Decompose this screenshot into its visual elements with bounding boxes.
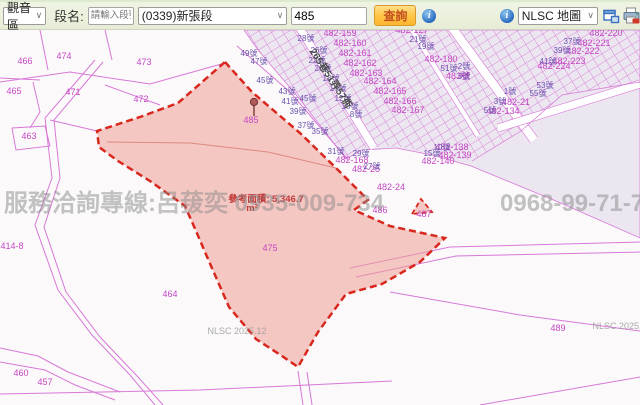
house-number-label: 31號 [328,146,345,156]
house-number-label: 8號 [350,109,362,119]
land-parcel-map-app: 觀音區 ∨ 段名: (0339)新張段 ∨ 查詢 i i NLSC 地圖 ∨ [0,0,640,405]
query-button[interactable]: 查詢 [374,5,416,26]
service-watermark: 服務洽詢專線:呂菝奕 0935-009-734 [4,189,385,217]
section-number-input[interactable] [88,7,134,25]
chevron-down-icon: ∨ [277,10,284,21]
house-number-label: 35號 [312,126,329,136]
parcel-number-label: 482-161 [338,48,371,58]
parcel-number-label: 457 [37,377,52,387]
parcel-number-label: 482-222 [566,46,599,56]
map-credit-label: NLSC 2025.12 [207,326,266,336]
parcel-number-label: 460 [13,368,28,378]
section-select-value: (0339)新張段 [142,7,213,24]
parcel-number-label: 473 [136,57,151,67]
parcel-number-label: 482-180 [424,54,457,64]
section-select[interactable]: (0339)新張段 ∨ [138,7,288,25]
district-select-value: 觀音區 [7,0,33,33]
parcel-number-label: 489 [550,323,565,333]
house-number-label: 39號 [290,106,307,116]
district-select[interactable]: 觀音區 ∨ [3,7,46,25]
parcel-number-label: 414-8 [0,241,23,251]
info-icon[interactable]: i [422,9,436,23]
house-number-label: 19號 [418,41,435,51]
parcel-number-label: 471 [65,87,80,97]
house-number-label: 3號 [458,71,470,81]
house-number-label: 10號 [434,142,451,152]
parcel-number-label: 482-162 [343,58,376,68]
service-watermark: 0968-99-71-75 [500,190,640,217]
parcel-number-label: 463 [21,131,36,141]
house-number-label: 5號 [484,105,496,115]
parcel-number-label: 475 [262,243,277,253]
chevron-down-icon: ∨ [587,10,594,21]
house-number-label: 2號 [458,61,470,71]
parcel-number-input[interactable] [291,7,367,25]
house-number-label: 1號 [504,86,516,96]
basemap-info-icon[interactable]: i [500,9,514,23]
chevron-down-icon: ∨ [36,10,43,21]
parcel-number-label: 482-220 [589,30,622,38]
house-number-label: 27號 [364,161,381,171]
parcel-number-label: 464 [162,289,177,299]
house-number-label: 45號 [257,75,274,85]
parcel-number-label: 482-160 [333,38,366,48]
house-number-label: 55號 [530,88,547,98]
house-number-label: 45號 [300,93,317,103]
new-window-icon[interactable] [603,8,620,24]
parcel-number-label: 482-165 [373,86,406,96]
print-pdf-icon[interactable] [623,7,640,24]
parcel-number-label: 485 [243,115,258,125]
parcel-number-label: 482-159 [323,30,356,38]
house-number-label: 29號 [353,148,370,158]
parcel-number-label: 465 [6,86,21,96]
house-number-label: 3號 [494,96,506,106]
house-number-label: 47號 [251,56,268,66]
parcel-number-label: 482-164 [363,76,396,86]
parcel-number-label: 482-167 [391,105,424,115]
parcel-number-label: 487 [416,209,431,219]
cadastral-map[interactable]: 466474473465471472463414-846446045748947… [0,30,640,405]
house-number-label: 51號 [441,63,458,73]
house-number-label: 39號 [554,45,571,55]
basemap-select[interactable]: NLSC 地圖 ∨ [518,7,598,25]
house-number-label: 43號 [279,86,296,96]
parcel-number-label: 472 [133,94,148,104]
parcel-number-label: 474 [56,51,71,61]
map-credit-label: NLSC 2025.12 [592,321,640,331]
parcel-number-label: 466 [17,56,32,66]
section-name-label: 段名: [54,6,84,25]
basemap-select-value: NLSC 地圖 [522,7,581,24]
house-number-label: 28號 [298,33,315,43]
house-number-label: 41號 [540,56,557,66]
toolbar: 觀音區 ∨ 段名: (0339)新張段 ∨ 查詢 i i NLSC 地圖 ∨ [0,0,640,30]
house-number-label: 41號 [282,96,299,106]
house-number-label: 37號 [564,36,581,46]
